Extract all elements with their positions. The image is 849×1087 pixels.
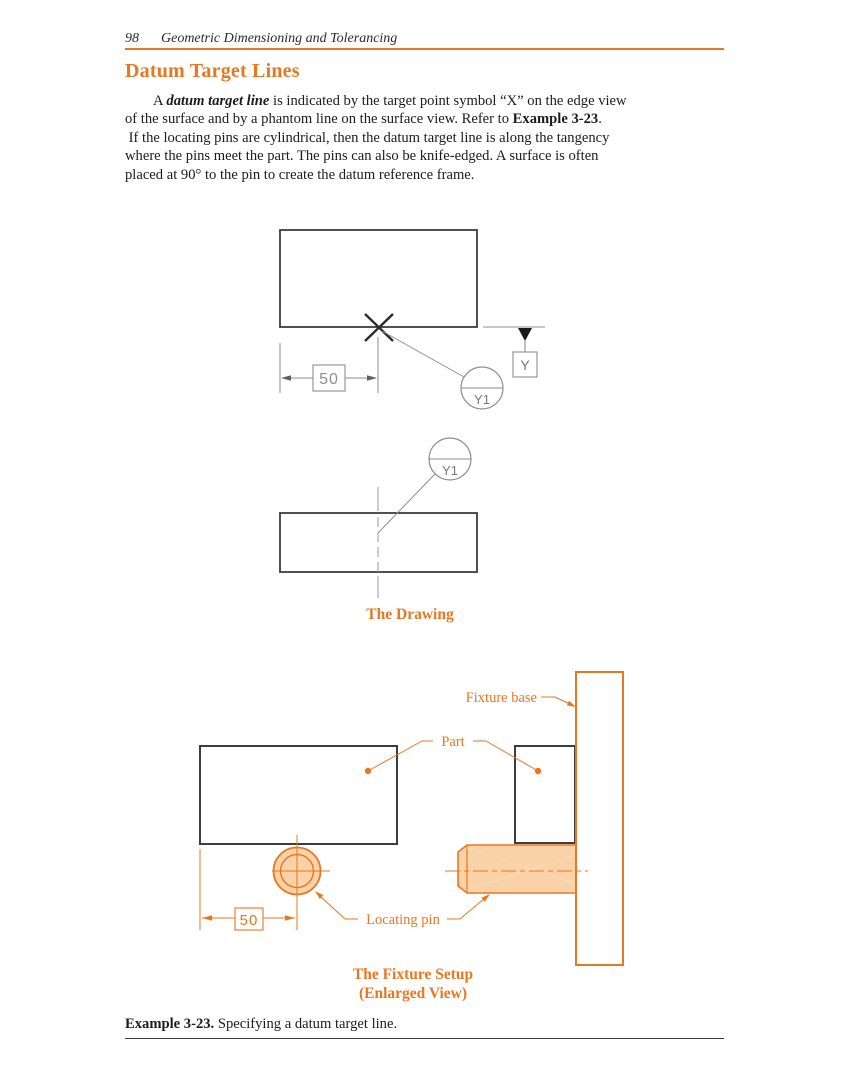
- page-number: 98: [125, 31, 139, 47]
- datum-feature-triangle-icon: [518, 328, 532, 341]
- part-right-rect: [515, 746, 575, 843]
- paragraph-text: of the surface and by a phantom line on …: [125, 111, 513, 127]
- textbook-page: 98 Geometric Dimensioning and Tolerancin…: [0, 0, 849, 1087]
- leader-line: [320, 896, 345, 919]
- term-datum-target-line: datum target line: [166, 93, 269, 109]
- locating-pin-cylinder: [458, 845, 576, 893]
- datum-target-label: Y1: [474, 392, 490, 407]
- example-text: Specifying a datum target line.: [214, 1016, 397, 1032]
- bottom-rule: [125, 1038, 724, 1039]
- leader-line: [382, 331, 464, 377]
- paragraph-line: A datum target line is indicated by the …: [125, 92, 737, 110]
- caption-the-drawing: The Drawing: [260, 606, 560, 624]
- datum-feature-label: Y: [520, 357, 530, 373]
- fixture-base-rect: [576, 672, 623, 965]
- paragraph-text: A: [153, 93, 166, 109]
- locating-pin-label: Locating pin: [366, 912, 440, 928]
- leader-arrow-icon: [567, 701, 576, 707]
- part-edge-view-rect: [280, 230, 477, 327]
- dimension-arrow-icon: [367, 375, 377, 380]
- figure-fixture-setup: 50 Fixture base Part Locating pin: [195, 665, 640, 1000]
- paragraph-line: placed at 90° to the pin to create the d…: [125, 166, 737, 184]
- leader-dot-icon: [365, 768, 371, 774]
- part-left-rect: [200, 746, 397, 844]
- fixture-base-label: Fixture base: [466, 690, 537, 706]
- example-ref: Example 3-23: [513, 111, 599, 127]
- figure-the-drawing: Y 50 Y1 Y1: [260, 225, 560, 610]
- dimension-arrow-icon: [202, 915, 212, 920]
- caption-line: The Fixture Setup: [263, 966, 563, 985]
- section-heading: Datum Target Lines: [125, 60, 300, 83]
- datum-target-label: Y1: [442, 463, 458, 478]
- paragraph-text: is indicated by the target point symbol …: [269, 93, 626, 109]
- leader-line: [460, 898, 485, 919]
- paragraph-line: If the locating pins are cylindrical, th…: [125, 129, 737, 147]
- example-number: Example 3-23.: [125, 1016, 214, 1032]
- paragraph-line: where the pins meet the part. The pins c…: [125, 147, 737, 165]
- header-rule: [125, 48, 724, 50]
- dimension-value: 50: [240, 912, 259, 929]
- running-header: 98 Geometric Dimensioning and Tolerancin…: [125, 31, 397, 47]
- part-label: Part: [441, 734, 464, 750]
- paragraph-text: .: [598, 111, 602, 127]
- example-caption: Example 3-23. Specifying a datum target …: [125, 1016, 397, 1033]
- leader-dot-icon: [535, 768, 541, 774]
- dimension-value: 50: [319, 371, 339, 388]
- leader-arrow-icon: [481, 894, 490, 902]
- paragraph-line: of the surface and by a phantom line on …: [125, 110, 737, 128]
- caption-line: (Enlarged View): [263, 985, 563, 1004]
- dimension-arrow-icon: [281, 375, 291, 380]
- body-paragraph: A datum target line is indicated by the …: [125, 92, 737, 184]
- caption-fixture-setup: The Fixture Setup (Enlarged View): [263, 966, 563, 1003]
- running-title: Geometric Dimensioning and Tolerancing: [161, 31, 397, 47]
- dimension-arrow-icon: [285, 915, 295, 920]
